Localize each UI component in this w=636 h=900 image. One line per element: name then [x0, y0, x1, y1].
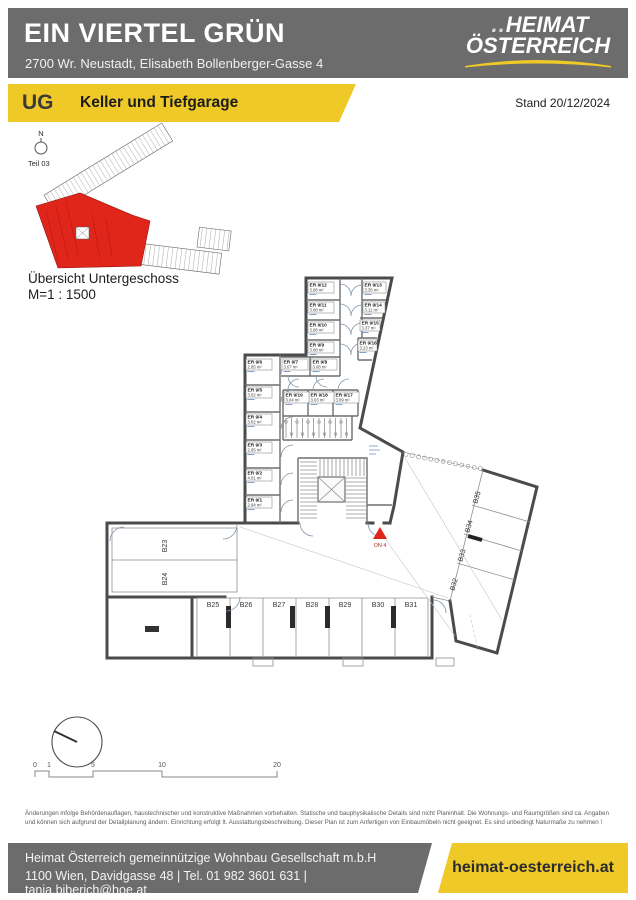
logo-swoosh-icon [463, 58, 613, 68]
storage-room-label: ER 9/163.23 m² [358, 340, 377, 353]
storage-room-label: ER 9/24.01 m² [246, 470, 272, 483]
storage-room-label: ER 9/32.95 m² [246, 442, 272, 455]
svg-text:3.02 m²: 3.02 m² [248, 393, 263, 398]
scale-10: 10 [158, 762, 166, 769]
storage-room-label: ER 9/113.08 m² [308, 302, 334, 315]
company-logo: ..HEIMAT ÖSTERREICH [460, 15, 616, 68]
storage-room-label: ER 9/93.08 m² [308, 342, 334, 355]
overview-highlight-red [36, 193, 150, 268]
parking-space-label: B35 [472, 490, 482, 504]
storage-room-label: ER 9/153.37 m² [360, 320, 380, 333]
parking-space-label: B32 [449, 577, 459, 591]
svg-text:3.08 m²: 3.08 m² [310, 348, 325, 353]
entrance-label: ON 4 [374, 543, 387, 549]
storage-room-label: ER 9/12.94 m² [246, 497, 272, 510]
svg-text:3.02 m²: 3.02 m² [248, 420, 263, 425]
overview-scale: M=1 : 1500 [28, 287, 179, 303]
entrance-marker: ON 4 [373, 527, 387, 549]
scale-1: 1 [47, 762, 51, 769]
plan-date: Stand 20/12/2024 [515, 96, 610, 110]
ramp-edge [403, 452, 483, 470]
floor-plan-drawing: N Teil 03 [0, 0, 636, 900]
svg-text:3.09 m²: 3.09 m² [336, 398, 351, 403]
header-bar: EIN VIERTEL GRÜN 2700 Wr. Neustadt, Elis… [8, 8, 628, 78]
svg-text:3.23 m²: 3.23 m² [360, 346, 375, 351]
footer-company: Heimat Österreich gemeinnützige Wohnbau … [25, 851, 376, 865]
storage-room-label: ER 9/62.85 m² [246, 359, 272, 372]
svg-text:4.01 m²: 4.01 m² [248, 476, 263, 481]
svg-text:3.35 m²: 3.35 m² [365, 288, 380, 293]
level-title: Keller und Tiefgarage [80, 94, 238, 112]
overview-title: Übersicht Untergeschoss [28, 271, 179, 287]
svg-text:3.08 m²: 3.08 m² [310, 328, 325, 333]
level-banner: UG Keller und Tiefgarage [8, 84, 356, 122]
room-labels: ER 9/12.94 m²ER 9/24.01 m²ER 9/32.95 m²E… [246, 282, 386, 510]
footer-bar: Heimat Österreich gemeinnützige Wohnbau … [8, 843, 432, 893]
storage-room-label: ER 9/183.03 m² [309, 392, 334, 405]
disclaimer-text: Änderungen infolge Behördenauflagen, hau… [25, 810, 613, 827]
parking-space-label: B26 [240, 602, 253, 609]
north-label: N [38, 129, 43, 138]
svg-text:3.08 m²: 3.08 m² [310, 308, 325, 313]
svg-text:2.94 m²: 2.94 m² [248, 503, 263, 508]
storage-room-label: ER 9/43.02 m² [246, 414, 272, 427]
plan-hatch [285, 418, 366, 518]
overview-map [36, 123, 231, 274]
parking-space-label: B23 [162, 540, 169, 553]
overview-caption: Übersicht Untergeschoss M=1 : 1500 [28, 271, 179, 304]
parking-space-label: B24 [162, 573, 169, 586]
part-label: Teil 03 [28, 159, 50, 168]
storage-room-label: ER 9/173.09 m² [334, 392, 359, 405]
footer-contact: 1100 Wien, Davidgasse 48 | Tel. 01 982 3… [25, 869, 432, 897]
orientation-circle [52, 717, 102, 767]
project-title: EIN VIERTEL GRÜN [24, 18, 285, 49]
logo-line2: ÖSTERREICH [460, 36, 616, 57]
storage-room-label: ER 9/123.08 m² [308, 282, 334, 295]
parking-space-label: B27 [273, 602, 286, 609]
level-code: UG [22, 91, 54, 115]
parking-space-label: B34 [464, 519, 474, 533]
technical-box [145, 626, 159, 632]
svg-text:2.95 m²: 2.95 m² [248, 448, 263, 453]
svg-text:3.03 m²: 3.03 m² [311, 398, 326, 403]
storage-room-label: ER 9/133.35 m² [363, 282, 386, 295]
storage-room-label: ER 9/73.07 m² [282, 359, 308, 372]
svg-text:2.85 m²: 2.85 m² [248, 365, 263, 370]
scale-0: 0 [33, 762, 37, 769]
svg-text:3.11 m²: 3.11 m² [365, 308, 379, 313]
scale-bar: 0 1 5 10 20 [33, 762, 281, 777]
plan-walls [107, 278, 537, 666]
storage-room-label: ER 9/103.08 m² [308, 322, 334, 335]
north-indicator: N [35, 129, 47, 154]
svg-text:3.07 m²: 3.07 m² [284, 365, 299, 370]
storage-room-label: ER 9/83.08 m² [311, 359, 337, 372]
footer-website-badge: heimat-oesterreich.at [438, 843, 628, 893]
storage-room-label: ER 9/143.11 m² [363, 302, 385, 315]
footer-website: heimat-oesterreich.at [452, 859, 614, 877]
project-address: 2700 Wr. Neustadt, Elisabeth Bollenberge… [25, 56, 323, 71]
svg-text:3.08 m²: 3.08 m² [313, 365, 328, 370]
parking-labels: B23B24B25B26B27B28B29B30B31B32B33B34B35 [162, 490, 483, 609]
svg-text:3.37 m²: 3.37 m² [362, 326, 377, 331]
svg-text:3.04 m²: 3.04 m² [286, 398, 301, 403]
storage-room-label: ER 9/193.04 m² [284, 392, 309, 405]
storage-room-label: ER 9/53.02 m² [246, 387, 272, 400]
parking-space-label: B31 [405, 602, 418, 609]
svg-text:3.08 m²: 3.08 m² [310, 288, 325, 293]
parking-space-label: B25 [207, 602, 220, 609]
plan-sheet: { "header": { "title": "EIN VIERTEL GRÜN… [0, 0, 636, 900]
scale-20: 20 [273, 762, 281, 769]
scale-5: 5 [91, 762, 95, 769]
parking-space-label: B29 [339, 602, 352, 609]
parking-space-label: B28 [306, 602, 319, 609]
parking-space-label: B30 [372, 602, 385, 609]
